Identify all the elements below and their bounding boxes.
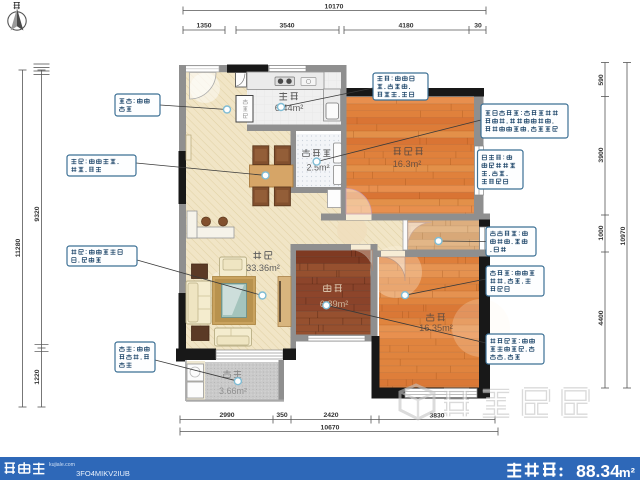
svg-text:1220: 1220 [34, 369, 41, 384]
svg-text:10670: 10670 [321, 425, 340, 432]
svg-text:10970: 10970 [620, 226, 627, 245]
svg-text:3.66m²: 3.66m² [219, 386, 247, 396]
svg-text:33.36m²: 33.36m² [246, 263, 280, 273]
svg-text:88.34: 88.34 [576, 461, 620, 480]
svg-text:1000: 1000 [598, 225, 605, 240]
svg-text:16.3m²: 16.3m² [393, 159, 422, 169]
svg-text:4180: 4180 [398, 23, 413, 30]
svg-text:30: 30 [474, 23, 482, 30]
svg-text:m²: m² [619, 465, 636, 480]
svg-text:2420: 2420 [323, 412, 338, 419]
svg-text:2990: 2990 [219, 412, 234, 419]
svg-text:4400: 4400 [598, 310, 605, 325]
svg-text:9320: 9320 [34, 206, 41, 221]
svg-text:kujiale.com: kujiale.com [49, 462, 75, 468]
svg-text:3540: 3540 [279, 23, 294, 30]
svg-text:11280: 11280 [15, 239, 22, 258]
svg-text:350: 350 [276, 412, 288, 419]
svg-text:3900: 3900 [598, 147, 605, 162]
svg-text:10170: 10170 [325, 4, 344, 11]
svg-text:1350: 1350 [196, 23, 211, 30]
svg-text:590: 590 [598, 74, 605, 86]
svg-text:3FO4MIKV2IUB: 3FO4MIKV2IUB [76, 469, 130, 478]
